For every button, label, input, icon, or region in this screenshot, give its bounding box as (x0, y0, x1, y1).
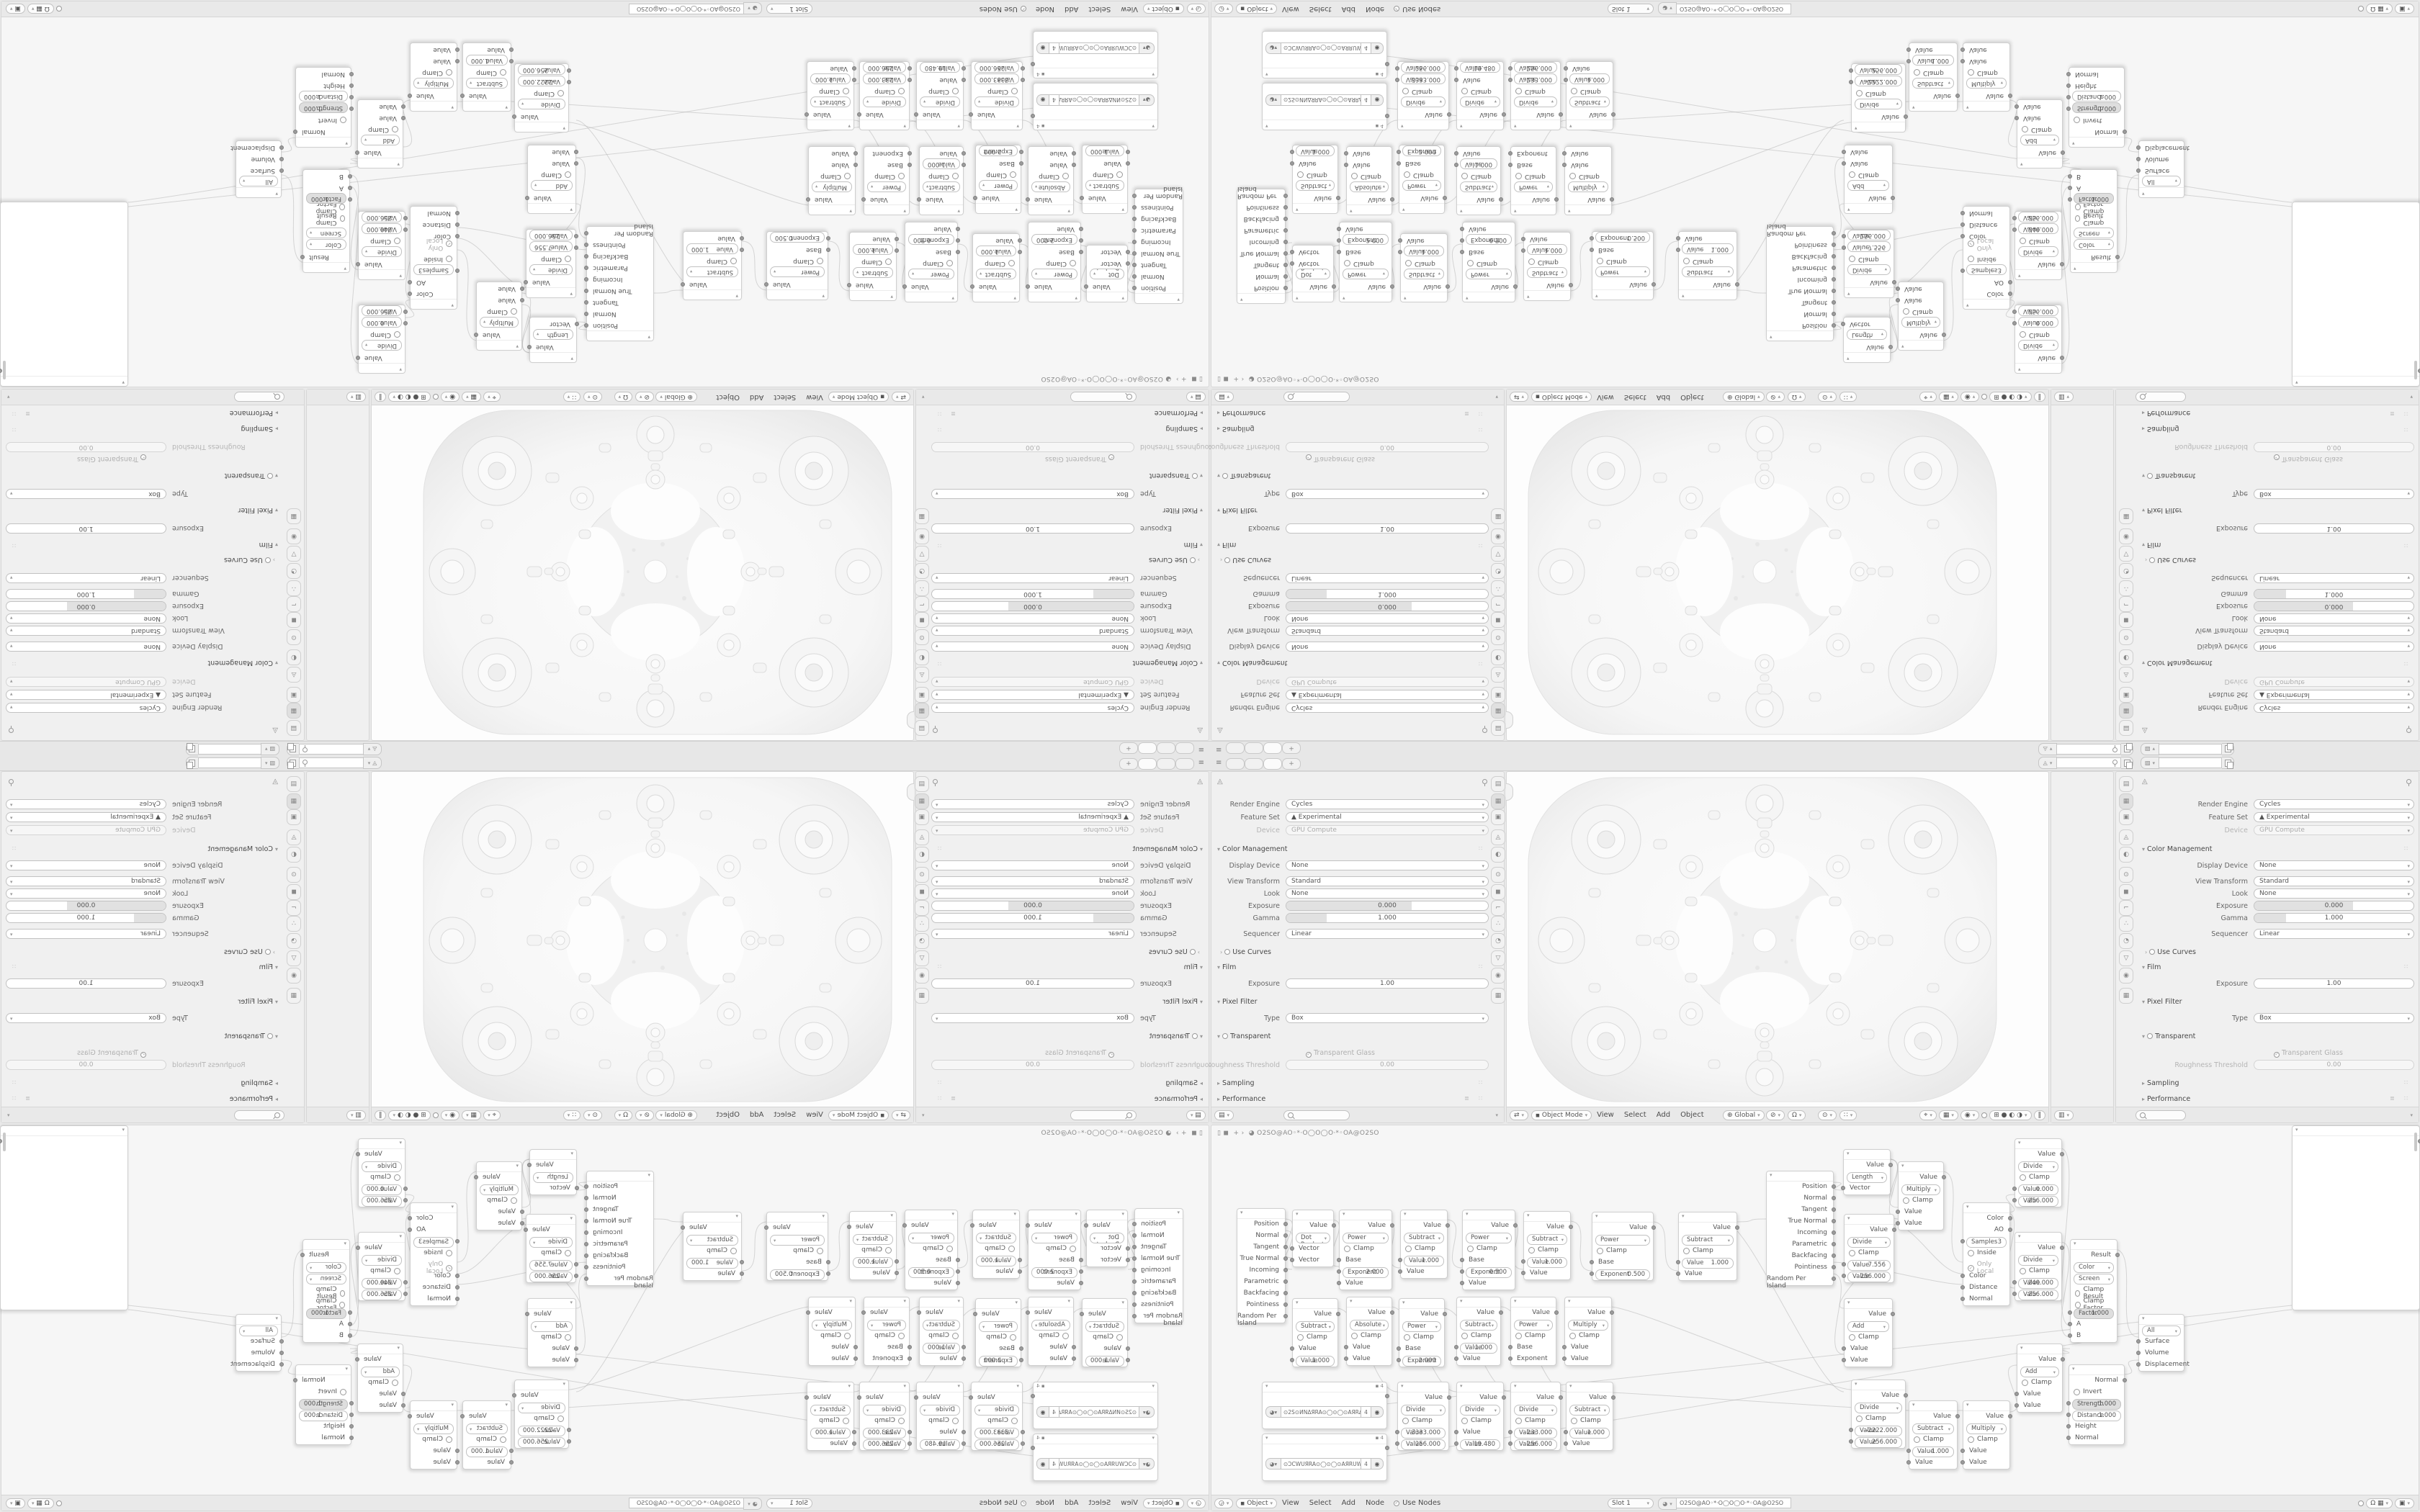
node-output-true-normal[interactable]: True Normal (587, 1216, 653, 1228)
node-math-div-3333[interactable]: ▾ValueDivide▾ClampValue3333.000Value256.… (1397, 1382, 1449, 1451)
menu-add[interactable]: Add (750, 393, 763, 401)
node-output-parametric[interactable]: Parametric (1767, 261, 1833, 273)
node-input[interactable]: Value (411, 1446, 457, 1457)
node-output[interactable]: Value (850, 279, 896, 290)
properties-tab-world-icon[interactable]: ⊙ (2119, 867, 2133, 883)
properties-tab-data-icon[interactable]: ◉ (915, 968, 929, 984)
node-checkbox-clamp[interactable]: Clamp (1344, 1245, 1374, 1252)
properties-tab-tool-icon[interactable]: ▤ (287, 776, 301, 792)
datablock-name-field[interactable]: ⊙ƆCWUЯRA⊙◯⊙◯⊙AЯRUWƆC⊙ (1281, 42, 1361, 54)
gizmo-toggle[interactable]: ⌖▾ (1919, 392, 1937, 402)
node-output[interactable]: Value (359, 351, 405, 363)
node-math-add-1[interactable]: ▾ValueAdd▾ClampValueValue (1844, 145, 1893, 214)
node-output-backfacing[interactable]: Backfacing (1135, 1288, 1183, 1300)
node-input[interactable]: Base (767, 1257, 828, 1269)
node-value-field[interactable]: Value1.000 (1912, 55, 1954, 66)
node-math-sub-d[interactable]: ▾ValueSubtract▾ClampValue1.000Value (807, 1382, 854, 1451)
node-input[interactable]: Value (920, 147, 963, 158)
node-input[interactable]: Value (1347, 158, 1391, 170)
node-math-sub-3[interactable]: ▾ValueSubtract▾ClampValue1.000Value (1678, 231, 1737, 300)
node-output[interactable]: Value (530, 1160, 576, 1171)
node-geometry-2[interactable]: ▾PositionNormalTangentTrue NormalIncomin… (1766, 1171, 1834, 1286)
properties-tab-physics-icon[interactable]: ◔ (915, 933, 929, 949)
overlay-dropdown[interactable]: ▣▾ (2395, 1498, 2414, 1508)
node-operation-dropdown[interactable]: Subtract▾ (1085, 180, 1124, 191)
node-material-output[interactable]: ▾All▾SurfaceVolumeDisplacement (236, 1314, 282, 1372)
properties-tab-constraint-icon[interactable]: ▽ (287, 950, 301, 966)
pin-icon[interactable] (2406, 728, 2411, 733)
node-input[interactable]: Color (1963, 1271, 2009, 1282)
properties-tab-physics-icon[interactable]: ◔ (2119, 933, 2133, 949)
node-output[interactable]: Color (411, 1213, 457, 1225)
node-output[interactable]: Value (1845, 1309, 1892, 1320)
node-input[interactable]: Vector (1087, 246, 1127, 257)
node-checkbox-clamp[interactable]: Clamp (1569, 173, 1600, 180)
node-math-sub-b2[interactable]: ▾ValueSubtract▾ClampValue1.000Value (1456, 146, 1501, 215)
drag-grip-icon[interactable]: ∷ (937, 410, 941, 417)
node-operation-dropdown[interactable]: Power▾ (770, 1235, 825, 1246)
node-input[interactable]: Volume (2139, 153, 2184, 164)
section-color-management[interactable]: ▾ Color Management (1133, 659, 1203, 667)
node-checkbox-clamp[interactable]: Clamp (2020, 331, 2050, 338)
snap-toggle[interactable]: ⊘▾ (635, 1110, 654, 1120)
node-checkbox-clamp[interactable]: Clamp (541, 171, 571, 179)
property-field-render-engine[interactable]: Cycles▾ (931, 799, 1134, 809)
properties-tab-object-icon[interactable]: ◼ (1491, 884, 1505, 900)
node-value-field[interactable]: Value1.000 (466, 55, 508, 66)
node-output[interactable]: Value (920, 193, 963, 204)
node-output[interactable]: Value (515, 110, 568, 122)
shader-node-editor[interactable]: ▾PositionNormalTangentTrue NormalIncomin… (1, 1125, 1209, 1511)
node-operation-dropdown[interactable]: Subtract▾ (1460, 1320, 1497, 1331)
node-operation-dropdown[interactable]: Add▾ (1847, 1321, 1889, 1332)
node-output-backfacing[interactable]: Backfacing (1767, 250, 1833, 261)
node-math-sub-2[interactable]: ▾ValueSubtract▾ClampValue1.000Value (1523, 232, 1571, 301)
node-value-field[interactable]: Value256.000 (1847, 230, 1891, 240)
node-output[interactable] (1, 364, 127, 376)
property-field-exposure[interactable]: 0.000 (931, 901, 1134, 911)
node-input[interactable]: Value (1565, 1342, 1611, 1354)
image-id-selector[interactable]: ▨▾ (186, 757, 279, 768)
node-checkbox-clamp[interactable]: Clamp (820, 1332, 851, 1339)
property-field-exposure[interactable]: 1.00 (6, 523, 166, 534)
node-operation-dropdown[interactable]: Divide▾ (1401, 96, 1446, 107)
node-checkbox-clamp[interactable]: Clamp (819, 88, 849, 95)
node-value-field[interactable]: Exponent0.500 (1595, 232, 1650, 243)
drag-grip-icon[interactable]: ∷ (12, 542, 16, 549)
property-field-display-device[interactable]: None▾ (6, 860, 166, 870)
section-color-management[interactable]: ▾ Color Management (2142, 845, 2212, 853)
node-output[interactable]: Value (2015, 1243, 2061, 1254)
node-checkbox-clamp[interactable]: Clamp (1968, 1436, 1998, 1443)
node-value-field[interactable]: Value256.000 (1847, 1272, 1891, 1282)
node-input[interactable]: Value (1083, 157, 1127, 168)
menu-select[interactable]: Select (1088, 1499, 1111, 1507)
search-input[interactable] (234, 1110, 284, 1120)
node-operation-dropdown[interactable]: Multiply▾ (1568, 181, 1608, 192)
property-field-look[interactable]: None▾ (931, 613, 1134, 624)
node-output[interactable]: Value (1679, 278, 1736, 289)
drag-grip-icon[interactable]: ∷ (12, 660, 16, 667)
node-input[interactable]: Value (2017, 1400, 2062, 1412)
node-value-field[interactable]: Value1.000 (1569, 73, 1610, 84)
properties-tab-modifier-icon[interactable]: ⌐ (2119, 900, 2133, 916)
node-input[interactable]: Color (411, 1271, 457, 1282)
node-value-field[interactable]: Samples3 (1966, 264, 2007, 275)
properties-tab-output-icon[interactable]: ▣ (2119, 687, 2133, 703)
node-output[interactable]: Value (1909, 1411, 1957, 1423)
node-output[interactable]: Value (1852, 1390, 1905, 1402)
node-output[interactable]: Value (1398, 108, 1448, 120)
node-input[interactable]: Value (850, 1268, 896, 1279)
node-input[interactable]: Value (1028, 1354, 1073, 1365)
node-output[interactable]: Value (1401, 1220, 1447, 1232)
node-operation-dropdown[interactable]: Divide▾ (974, 1405, 1019, 1416)
node-operation-dropdown[interactable]: Divide▾ (2018, 1161, 2058, 1172)
property-field-type[interactable]: Box▾ (2254, 1013, 2414, 1023)
node-math-mul-b[interactable]: ▾ValueMultiply▾ClampValueValue (1564, 1297, 1612, 1366)
property-field-sequencer[interactable]: Linear▾ (6, 929, 166, 939)
drag-grip-icon[interactable]: ∷ (1479, 963, 1483, 970)
fake-user-shield-icon[interactable]: ◉ (1371, 1458, 1384, 1470)
node-operation-dropdown[interactable]: Subtract▾ (1296, 1321, 1335, 1332)
node-checkbox-clamp[interactable]: Clamp (987, 1417, 1018, 1424)
node-operation-dropdown[interactable]: Subtract▾ (923, 1320, 960, 1331)
workspace-tab-active[interactable] (1138, 742, 1157, 754)
viewport-3d[interactable]: ⇄▾ ◼Object Mode▾ View Select Add Object … (371, 771, 914, 1123)
node-operation-dropdown[interactable]: Divide▾ (1514, 96, 1557, 107)
node-operation-dropdown[interactable]: Divide▾ (518, 99, 565, 109)
node-operation-dropdown[interactable]: Length▾ (1847, 329, 1887, 340)
node-checkbox-clamp[interactable]: Clamp (534, 90, 564, 97)
node-operation-dropdown[interactable]: Power▾ (1514, 1320, 1553, 1331)
section-film[interactable]: ▾ Film (259, 963, 278, 971)
node-operation-dropdown[interactable]: Add▾ (361, 135, 400, 145)
node-value-field[interactable]: Value256.000 (974, 1439, 1019, 1450)
node-output[interactable]: Value (528, 192, 575, 203)
datablock-icon[interactable]: ◕▾ (1139, 42, 1155, 54)
node-operation-dropdown[interactable]: Power▾ (1402, 1321, 1441, 1332)
proportional-edit[interactable]: ⊙▾ (1818, 392, 1837, 402)
fake-user-shield-icon[interactable]: ◉ (1036, 94, 1049, 106)
property-field-feature-set[interactable]: ▲ Experimental▾ (6, 690, 166, 700)
checkbox-use-curves[interactable]: › Use Curves (1149, 948, 1200, 956)
node-math-mul-1[interactable]: ▾ValueMultiply▾ClampValueValue (476, 282, 522, 351)
pin-icon[interactable] (1482, 728, 1487, 733)
node-checkbox-clamp[interactable]: Clamp (1402, 1417, 1433, 1424)
checkbox-use-curves[interactable]: › Use Curves (224, 948, 275, 956)
node-ambient-occlusion[interactable]: ▾ColorAOSamples3Inside✓Only LocalColorDi… (1963, 1202, 2010, 1306)
node-ambient-occlusion[interactable]: ▾ColorAOSamples3Inside✓Only LocalColorDi… (410, 1202, 457, 1306)
node-value-field[interactable]: Value256.000 (1855, 64, 1902, 75)
menu-select[interactable]: Select (1088, 5, 1111, 13)
editor-type-button[interactable]: ▤▾ (1214, 1110, 1234, 1120)
node-input[interactable]: Value (1028, 147, 1073, 158)
node-math-div-240[interactable]: ▾ValueDivide▾ClampValue240.000Valu256.00… (358, 211, 405, 280)
node-math-div-240[interactable]: ▾ValueDivide▾ClampValue240.000Valu256.00… (2015, 211, 2062, 280)
node-input[interactable]: Value (684, 232, 741, 243)
drag-grip-icon[interactable]: ∷ (12, 1079, 16, 1086)
search-input[interactable] (234, 392, 284, 402)
node-value-field[interactable]: Value3333.000 (1401, 73, 1446, 84)
node-math-add-2[interactable]: ▾ValueAdd▾ClampValueValue (357, 1344, 403, 1413)
filter-dropdown-icon[interactable]: ▾ (1495, 395, 1498, 400)
toolbar-toggle-handle[interactable] (907, 711, 914, 729)
node-operation-dropdown[interactable]: Screen▾ (306, 1274, 346, 1284)
drag-grip-icon[interactable]: ∷ (937, 963, 941, 970)
node-output-random-per-island[interactable]: Random Per Island (1135, 189, 1183, 201)
node-operation-dropdown[interactable]: Subtract▾ (853, 267, 893, 278)
node-output-true-normal[interactable]: True Normal (587, 284, 653, 296)
node-output[interactable]: Value (1028, 193, 1073, 204)
node-output-incoming[interactable]: Incoming (1237, 235, 1285, 247)
node-group-2[interactable]: ▾▪ 4◕▾⊙ƆCWUЯRA⊙◯⊙◯⊙AЯRUWƆC⊙4◉ (1033, 31, 1158, 78)
node-input[interactable]: Normal (296, 1433, 351, 1444)
node-input[interactable]: Value (1524, 233, 1570, 244)
menu-object[interactable]: Object (716, 1111, 740, 1119)
section-performance[interactable]: ▸ Performance (2142, 1095, 2190, 1103)
datablock-icon[interactable]: ◕▾ (1265, 94, 1281, 106)
node-value-field[interactable]: Value256.000 (1855, 1437, 1902, 1448)
node-input[interactable]: Base (767, 243, 828, 255)
node-output-true-normal[interactable]: True Normal (1237, 247, 1285, 258)
search-input[interactable] (2136, 392, 2186, 402)
drag-grip-icon[interactable]: ∷ (2404, 845, 2408, 852)
menu-object[interactable]: Object (716, 393, 740, 401)
material-id-field[interactable] (2057, 744, 2121, 755)
drag-grip-icon[interactable]: ∷ (937, 542, 941, 549)
snapping-options[interactable]: ∷▾ (563, 392, 581, 402)
node-output[interactable]: Value (358, 1354, 403, 1366)
node-output[interactable]: Value (463, 89, 511, 101)
node-input[interactable]: Distance (411, 1282, 457, 1294)
overlays-toggle[interactable]: ▦▾ (462, 392, 481, 402)
node-math-sub-b1[interactable]: ▾ValueSubtract▾ClampValueValue1.000 (1082, 1298, 1128, 1367)
node-value-field[interactable]: Samples3 (413, 1237, 454, 1248)
drag-grip-icon[interactable]: ∷ (1479, 410, 1483, 417)
node-value-field[interactable]: Value-2222.000 (518, 76, 565, 86)
node-output[interactable]: Value (905, 280, 957, 292)
property-field-device[interactable]: GPU Compute▾ (1286, 677, 1489, 687)
workspace-tab[interactable] (1245, 742, 1263, 754)
section-performance[interactable]: ▸ Performance (230, 409, 278, 417)
node-math-pow-3[interactable]: ▾ValuePower▾ClampBaseExponent0.500 (766, 231, 828, 300)
material-id-field[interactable] (2057, 757, 2121, 768)
property-field-exposure[interactable]: 0.000 (6, 601, 166, 611)
node-checkbox-clamp[interactable]: Clamp (923, 1245, 953, 1252)
overlays-toggle[interactable]: ▦▾ (462, 1110, 481, 1120)
node-input[interactable]: Value (411, 1457, 457, 1469)
node-value-field[interactable]: Value256.000 (863, 62, 906, 73)
node-input[interactable]: Distance (1963, 218, 2009, 230)
datablock-name-field[interactable]: ⊙2S⊙ИNΔЯRA⊙◯⊙◯⊙AЯRΔNИ⊙2S⊙ (1281, 1406, 1361, 1418)
property-field-gamma[interactable]: 1.000 (6, 913, 166, 923)
property-field-device[interactable]: GPU Compute▾ (931, 677, 1134, 687)
node-input[interactable]: Value (528, 1355, 575, 1367)
checkbox-transparent-glass[interactable]: ✓ Transparent Glass (1045, 1049, 1114, 1058)
node-value-field[interactable]: Value256.000 (518, 64, 565, 75)
node-checkbox-clamp[interactable]: Clamp (707, 1247, 737, 1254)
node-math-mul-b[interactable]: ▾ValueMultiply▾ClampValueValue (808, 1297, 856, 1366)
node-group-big[interactable]: ▾ (2292, 1125, 2420, 1310)
node-input[interactable]: Value (1963, 55, 2009, 66)
drag-grip-icon[interactable]: ∷ (12, 963, 16, 970)
node-operation-dropdown[interactable]: Divide▾ (1460, 1405, 1500, 1416)
node-output-backfacing[interactable]: Backfacing (1767, 1251, 1833, 1262)
xray-toggle[interactable]: ◉▾ (441, 1110, 460, 1120)
node-checkbox-clamp[interactable]: Clamp (368, 126, 398, 133)
properties-tab-texture-icon[interactable]: ▦ (1491, 988, 1505, 1004)
node-math-sub-4[interactable]: ▾ValueSubtract▾ClampValue1.000Value (1909, 42, 1958, 112)
node-checkbox-invert[interactable]: Invert (318, 1388, 346, 1395)
node-value-field[interactable]: Value-2222.000 (518, 1426, 565, 1436)
section-sampling[interactable]: ▸ Sampling (1217, 425, 1255, 433)
use-nodes-checkbox[interactable]: ✓ Use Nodes (980, 5, 1026, 13)
node-operation-dropdown[interactable]: Multiply▾ (480, 1184, 519, 1195)
node-geometry-1[interactable]: ▾PositionNormalTangentTrue NormalIncomin… (1237, 189, 1286, 304)
node-checkbox-clamp[interactable]: Clamp (1528, 258, 1559, 266)
property-field-roughness-threshold[interactable]: 0.00 (2254, 442, 2414, 452)
mode-dropdown[interactable]: ◼Object Mode▾ (1531, 392, 1592, 402)
node-output[interactable]: Result (2071, 251, 2117, 262)
copy-button[interactable] (287, 743, 299, 755)
node-input[interactable]: Value (1401, 234, 1447, 246)
node-math-add-2[interactable]: ▾ValueAdd▾ClampValueValue (357, 99, 403, 168)
properties-tab-tool-icon[interactable]: ▤ (287, 720, 301, 736)
pause-button[interactable]: ‖ (2034, 392, 2046, 402)
material-name-field[interactable]: O2SO@AO◦*·O◯O◯O·*◦OA@O2SO (629, 1498, 743, 1508)
copy-button[interactable] (2121, 743, 2133, 755)
node-value-field[interactable]: Exponent2.000 (1402, 145, 1441, 156)
node-output[interactable]: Value (1457, 1392, 1503, 1404)
node-input[interactable]: Base (864, 158, 909, 170)
node-math-pow-1[interactable]: ▾ValuePower▾ClampBaseExponent2.000Value (1339, 222, 1392, 302)
node-input[interactable]: Height (2069, 79, 2124, 91)
properties-tab-object-icon[interactable]: ◼ (287, 884, 301, 900)
node-math-div-neg[interactable]: ▾ValueDivide▾ClampValue-2222.000Value256… (1851, 1380, 1906, 1449)
node-value-field[interactable]: Value240.000 (362, 1278, 402, 1289)
fake-user-shield-icon[interactable]: ◉ (1371, 1406, 1384, 1418)
snapping-options[interactable]: ∷▾ (1839, 392, 1857, 402)
menu-node[interactable]: Node (1366, 5, 1384, 13)
node-operation-dropdown[interactable]: Power▾ (867, 1320, 906, 1331)
node-checkbox-clamp[interactable]: Clamp (861, 1246, 892, 1254)
node-operation-dropdown[interactable]: Subtract▾ (853, 1234, 893, 1245)
properties-tab-object-icon[interactable]: ◼ (1491, 612, 1505, 628)
properties-tab-data-icon[interactable]: ◉ (2119, 968, 2133, 984)
section-sampling[interactable]: ▸ Sampling (241, 425, 278, 433)
search-input[interactable] (1070, 1110, 1137, 1120)
node-operation-dropdown[interactable]: Dot Product▾ (1090, 269, 1124, 279)
node-checkbox-clamp[interactable]: Clamp (2020, 238, 2050, 245)
property-field-render-engine[interactable]: Cycles▾ (931, 703, 1134, 713)
hamburger-menu-icon[interactable]: ≡ (1198, 745, 1204, 753)
node-output[interactable]: Value (860, 108, 909, 120)
node-output[interactable]: Value (1845, 1225, 1894, 1236)
node-input[interactable]: Value (809, 1354, 855, 1365)
node-output-normal[interactable]: Normal (1767, 1193, 1833, 1205)
node-checkbox-clamp[interactable]: Clamp (1571, 88, 1601, 95)
node-output[interactable]: Value (1028, 280, 1080, 292)
node-checkbox-clamp[interactable]: Clamp (368, 1379, 398, 1386)
property-field-display-device[interactable]: None▾ (1286, 642, 1489, 652)
add-workspace-tab[interactable]: + (1119, 742, 1138, 754)
drag-grip-icon[interactable]: ∷ (12, 1095, 16, 1102)
search-input[interactable] (1070, 392, 1137, 402)
editor-type-button[interactable]: ▤▾ (1186, 392, 1206, 402)
snap-magnet[interactable]: Ω▾ (1788, 1110, 1806, 1120)
section-pixel-filter[interactable]: ▾ Pixel Filter (1217, 998, 1258, 1006)
node-operation-dropdown[interactable]: Divide▾ (2018, 246, 2058, 257)
node-operation-dropdown[interactable]: Power▾ (908, 269, 954, 279)
node-operation-dropdown[interactable]: Divide▾ (529, 1237, 573, 1248)
node-input[interactable]: Surface (236, 164, 281, 176)
overlay-dropdown[interactable]: ▣▾ (6, 4, 25, 14)
node-math-div-7556[interactable]: ▾ValueDivide▾ClampValue7.556Value256.000 (526, 1214, 576, 1283)
datablock-icon[interactable]: ◕▾ (1265, 1406, 1281, 1418)
node-math-pow-2[interactable]: ▾ValuePower▾ClampBaseExponent0.500Value (905, 1210, 958, 1290)
pin-icon[interactable] (933, 728, 938, 733)
node-input[interactable]: Normal (1963, 1294, 2009, 1305)
menu-view[interactable]: View (1282, 5, 1299, 13)
properties-tab-output-icon[interactable]: ▣ (287, 687, 301, 703)
node-input[interactable]: Normal (2069, 68, 2124, 79)
node-operation-dropdown[interactable]: Subtract▾ (976, 269, 1016, 279)
node-output[interactable]: Value (1399, 192, 1444, 203)
node-math-mul-2[interactable]: ▾ValueMultiply▾ClampValueValue (410, 1400, 457, 1470)
node-output[interactable]: Normal (2069, 125, 2124, 137)
section-sampling[interactable]: ▸ Sampling (1165, 1079, 1203, 1087)
overlay-dropdown[interactable]: ▣▾ (2395, 4, 2414, 14)
node-output[interactable]: Value (1524, 1222, 1570, 1233)
node-group-2[interactable]: ▾▪ 4◕▾⊙ƆCWUЯRA⊙◯⊙◯⊙AЯRUWƆC⊙4◉ (1262, 1434, 1387, 1481)
node-input[interactable]: Base (976, 1344, 1021, 1355)
section-film[interactable]: ▾ Film (1217, 963, 1236, 971)
node-value-field[interactable]: Value1.000 (1085, 145, 1124, 156)
node-value-field[interactable]: Factor1.000 (306, 193, 346, 204)
property-field-view-transform[interactable]: Standard▾ (931, 876, 1134, 886)
node-output-backfacing[interactable]: Backfacing (1237, 1288, 1285, 1300)
menu-view[interactable]: View (1121, 1499, 1138, 1507)
node-input[interactable]: Vector (1844, 318, 1890, 329)
properties-tab-scene-icon[interactable]: ◐ (915, 847, 929, 863)
node-input[interactable]: Vector (530, 318, 576, 329)
property-field-gamma[interactable]: 1.000 (2254, 913, 2414, 923)
toolbar-toggle-handle[interactable] (1506, 711, 1513, 729)
copy-button[interactable] (2222, 757, 2234, 769)
node-value-field[interactable]: Exponent2.000 (1402, 1356, 1441, 1367)
node-input[interactable]: Value (917, 73, 963, 85)
property-field-roughness-threshold[interactable]: 0.00 (6, 442, 166, 452)
node-checkbox-clamp[interactable]: Clamp (1914, 1436, 1944, 1443)
property-field-render-engine[interactable]: Cycles▾ (2254, 703, 2414, 713)
node-group-big[interactable]: ▾ (0, 202, 128, 387)
node-input[interactable]: Base (1028, 1255, 1080, 1266)
node-operation-dropdown[interactable]: Multiply▾ (1901, 1184, 1940, 1195)
menu-view[interactable]: View (1121, 5, 1138, 13)
list-icon[interactable]: ≣ (1464, 1095, 1470, 1102)
node-input[interactable]: Surface (236, 1336, 281, 1348)
node-math-mul-1[interactable]: ▾ValueMultiply▾ClampValueValue (476, 1161, 522, 1230)
shader-type-dropdown[interactable]: ◼Object▾ (1236, 4, 1277, 14)
property-field-render-engine[interactable]: Cycles▾ (1286, 703, 1489, 713)
node-operation-dropdown[interactable]: Length▾ (533, 1172, 573, 1183)
node-value-field[interactable]: Value1.000 (810, 73, 851, 84)
menu-select[interactable]: Select (1624, 1111, 1646, 1119)
section-performance[interactable]: ▸ Performance (1217, 1095, 1265, 1103)
node-value-field[interactable]: Valu256.000 (2018, 305, 2058, 316)
node-operation-dropdown[interactable]: Color▾ (306, 239, 346, 250)
